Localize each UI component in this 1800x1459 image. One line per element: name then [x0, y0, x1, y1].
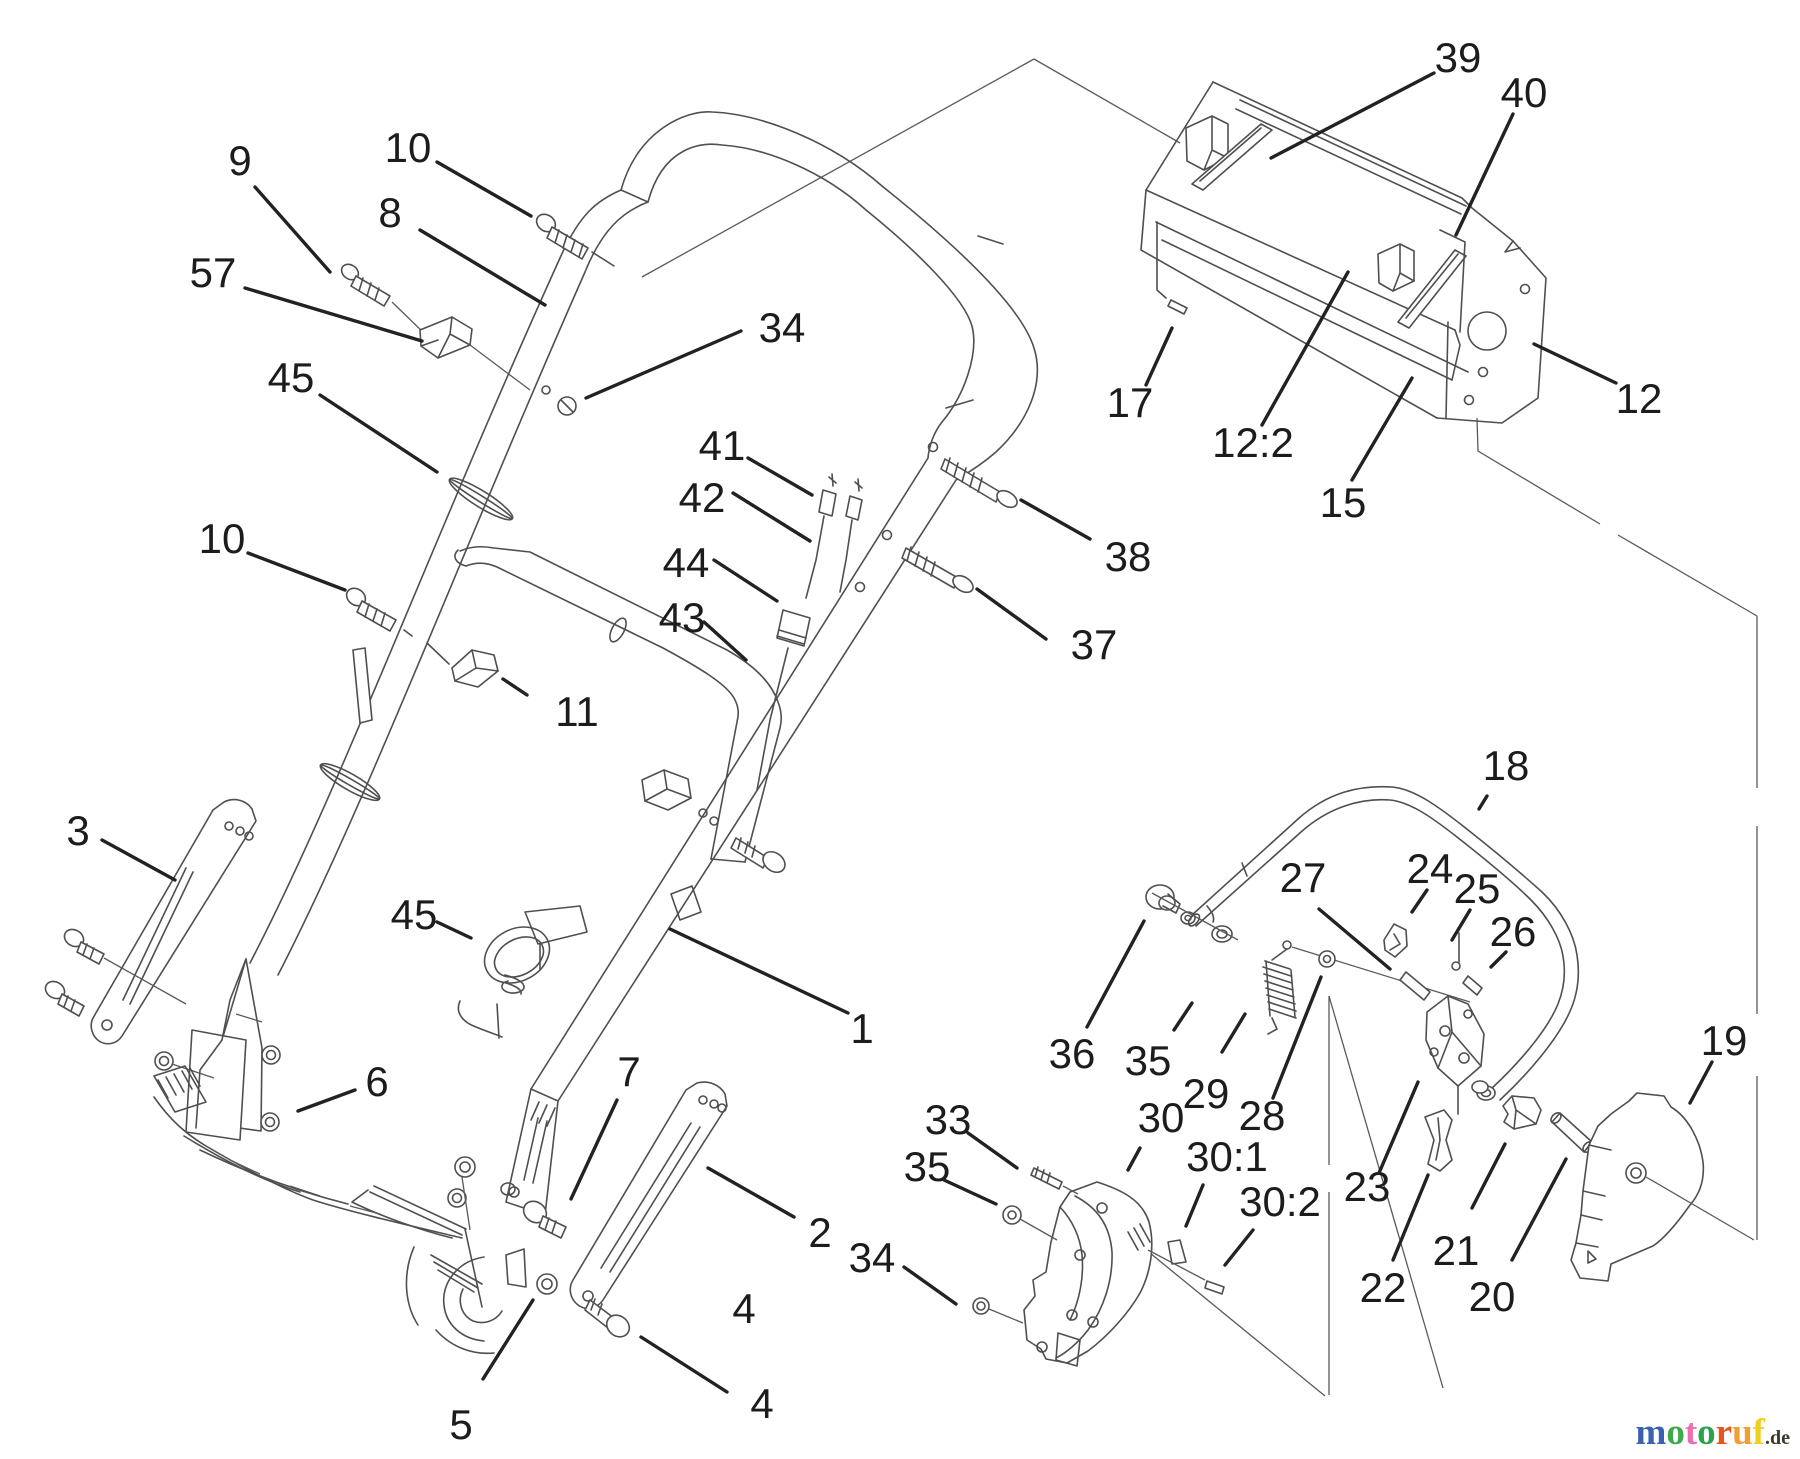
- svg-text:22: 22: [1360, 1264, 1407, 1311]
- svg-text:40: 40: [1501, 69, 1548, 116]
- svg-text:19: 19: [1701, 1017, 1748, 1064]
- svg-text:37: 37: [1071, 621, 1118, 668]
- svg-text:44: 44: [663, 539, 710, 586]
- svg-text:33: 33: [925, 1096, 972, 1143]
- svg-text:43: 43: [659, 594, 706, 641]
- svg-text:45: 45: [391, 891, 438, 938]
- svg-text:57: 57: [190, 249, 237, 296]
- svg-text:35: 35: [1125, 1037, 1172, 1084]
- svg-text:12: 12: [1616, 375, 1663, 422]
- svg-text:4: 4: [732, 1285, 755, 1332]
- svg-text:5: 5: [449, 1401, 472, 1448]
- svg-text:38: 38: [1105, 533, 1152, 580]
- svg-text:4: 4: [750, 1380, 773, 1427]
- svg-text:7: 7: [617, 1048, 640, 1095]
- svg-text:30:1: 30:1: [1186, 1133, 1268, 1180]
- svg-text:28: 28: [1239, 1092, 1286, 1139]
- svg-text:30: 30: [1138, 1094, 1185, 1141]
- svg-text:34: 34: [849, 1234, 896, 1281]
- svg-text:12:2: 12:2: [1212, 419, 1294, 466]
- svg-text:8: 8: [378, 189, 401, 236]
- svg-text:2: 2: [808, 1209, 831, 1256]
- svg-text:21: 21: [1433, 1227, 1480, 1274]
- svg-text:15: 15: [1320, 479, 1367, 526]
- svg-text:26: 26: [1490, 908, 1537, 955]
- svg-text:24: 24: [1407, 845, 1454, 892]
- svg-text:35: 35: [904, 1143, 951, 1190]
- svg-text:42: 42: [679, 474, 726, 521]
- svg-text:1: 1: [850, 1005, 873, 1052]
- svg-text:29: 29: [1183, 1070, 1230, 1117]
- svg-text:18: 18: [1483, 742, 1530, 789]
- svg-text:23: 23: [1344, 1163, 1391, 1210]
- svg-text:11: 11: [555, 688, 599, 735]
- svg-text:27: 27: [1280, 854, 1327, 901]
- svg-text:30:2: 30:2: [1239, 1178, 1321, 1225]
- svg-text:36: 36: [1049, 1030, 1096, 1077]
- svg-text:25: 25: [1454, 865, 1501, 912]
- svg-text:6: 6: [365, 1058, 388, 1105]
- svg-text:10: 10: [385, 124, 432, 171]
- svg-text:34: 34: [759, 304, 806, 351]
- svg-text:9: 9: [228, 137, 251, 184]
- svg-text:3: 3: [66, 807, 89, 854]
- svg-text:20: 20: [1469, 1273, 1516, 1320]
- svg-text:39: 39: [1435, 34, 1482, 81]
- svg-text:41: 41: [699, 422, 746, 469]
- svg-text:45: 45: [268, 354, 315, 401]
- svg-text:10: 10: [199, 515, 246, 562]
